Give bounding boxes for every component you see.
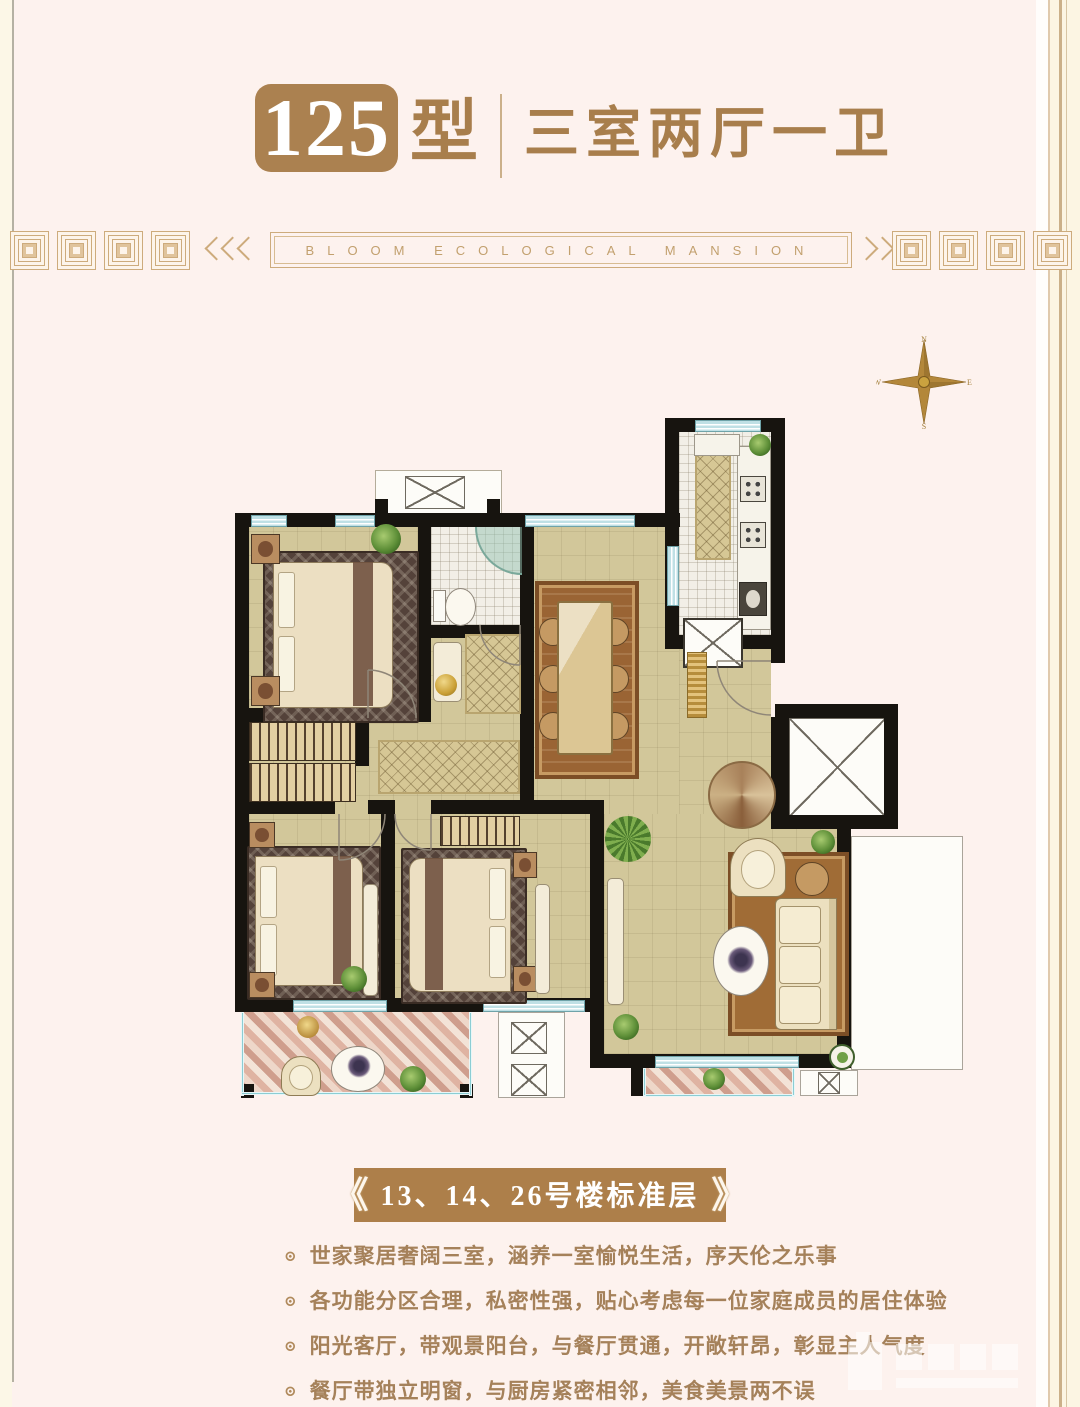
feature-text: 各功能分区合理，私密性强，贴心考虑每一位家庭成员的居住体验 <box>310 1289 948 1313</box>
band-ornament-square <box>57 231 96 270</box>
door-swing-annotations <box>235 418 970 1110</box>
band-ornament-square <box>939 231 978 270</box>
page-title: 三室两厅一卫 <box>524 102 896 166</box>
bullet-icon: ⊙ <box>284 1384 298 1400</box>
feature-text: 世家聚居奢阔三室，涵养一室愉悦生活，序天伦之乐事 <box>310 1244 838 1268</box>
floorplan-drawing <box>235 418 970 1110</box>
feature-item: ⊙餐厅带独立明窗，与厨房紧密相邻，美食美景两不误 <box>284 1375 816 1405</box>
feature-text: 阳光客厅，带观景阳台，与餐厅贯通，开敞轩昂，彰显主人气度 <box>310 1334 926 1358</box>
band-ornament-square <box>1033 231 1072 270</box>
band-ornament-square <box>986 231 1025 270</box>
band-ornament-square <box>151 231 190 270</box>
watermark-logo-icon <box>848 1342 882 1390</box>
watermark-block <box>896 1344 922 1370</box>
svg-text:E: E <box>967 378 972 387</box>
feature-text: 餐厅带独立明窗，与厨房紧密相邻，美食美景两不误 <box>310 1379 816 1403</box>
watermark <box>848 1332 1058 1400</box>
band-chevron-icon <box>236 236 260 260</box>
watermark-block <box>928 1344 954 1370</box>
feature-item: ⊙世家聚居奢阔三室，涵养一室愉悦生活，序天伦之乐事 <box>284 1240 838 1270</box>
bullet-icon: ⊙ <box>284 1294 298 1310</box>
svg-text:W: W <box>876 378 881 387</box>
feature-item: ⊙阳光客厅，带观景阳台，与餐厅贯通，开敞轩昂，彰显主人气度 <box>284 1330 926 1360</box>
watermark-block <box>992 1344 1018 1370</box>
watermark-bar <box>896 1378 1018 1388</box>
unit-type-suffix: 型 <box>410 96 478 168</box>
watermark-logo-icon <box>856 1332 870 1344</box>
feature-item: ⊙各功能分区合理，私密性强，贴心考虑每一位家庭成员的居住体验 <box>284 1285 948 1315</box>
bullet-icon: ⊙ <box>284 1339 298 1355</box>
building-banner: 13、14、26号楼标准层 <box>354 1168 725 1222</box>
ribbon-inner-border <box>274 236 848 264</box>
band-ornament-square <box>104 231 143 270</box>
unit-size-badge: 125 <box>255 84 398 172</box>
svg-text:N: N <box>921 335 927 344</box>
banner-open-chevron: 《 <box>332 1177 368 1213</box>
compass-icon: N E S W <box>876 334 972 430</box>
header-divider <box>500 94 502 178</box>
ribbon-box: BLOOM ECOLOGICAL MANSION <box>270 232 852 268</box>
banner-row: 《 13、14、26号楼标准层 》 <box>0 1168 1080 1222</box>
band-ornament-square <box>10 231 49 270</box>
watermark-block <box>960 1344 986 1370</box>
bullet-icon: ⊙ <box>284 1249 298 1265</box>
banner-close-chevron: 》 <box>712 1177 748 1213</box>
floorplan-poster-page: 125 型 三室两厅一卫 BLOOM ECOLOGICAL MANSION N … <box>0 0 1080 1407</box>
band-ornament-square <box>892 231 931 270</box>
